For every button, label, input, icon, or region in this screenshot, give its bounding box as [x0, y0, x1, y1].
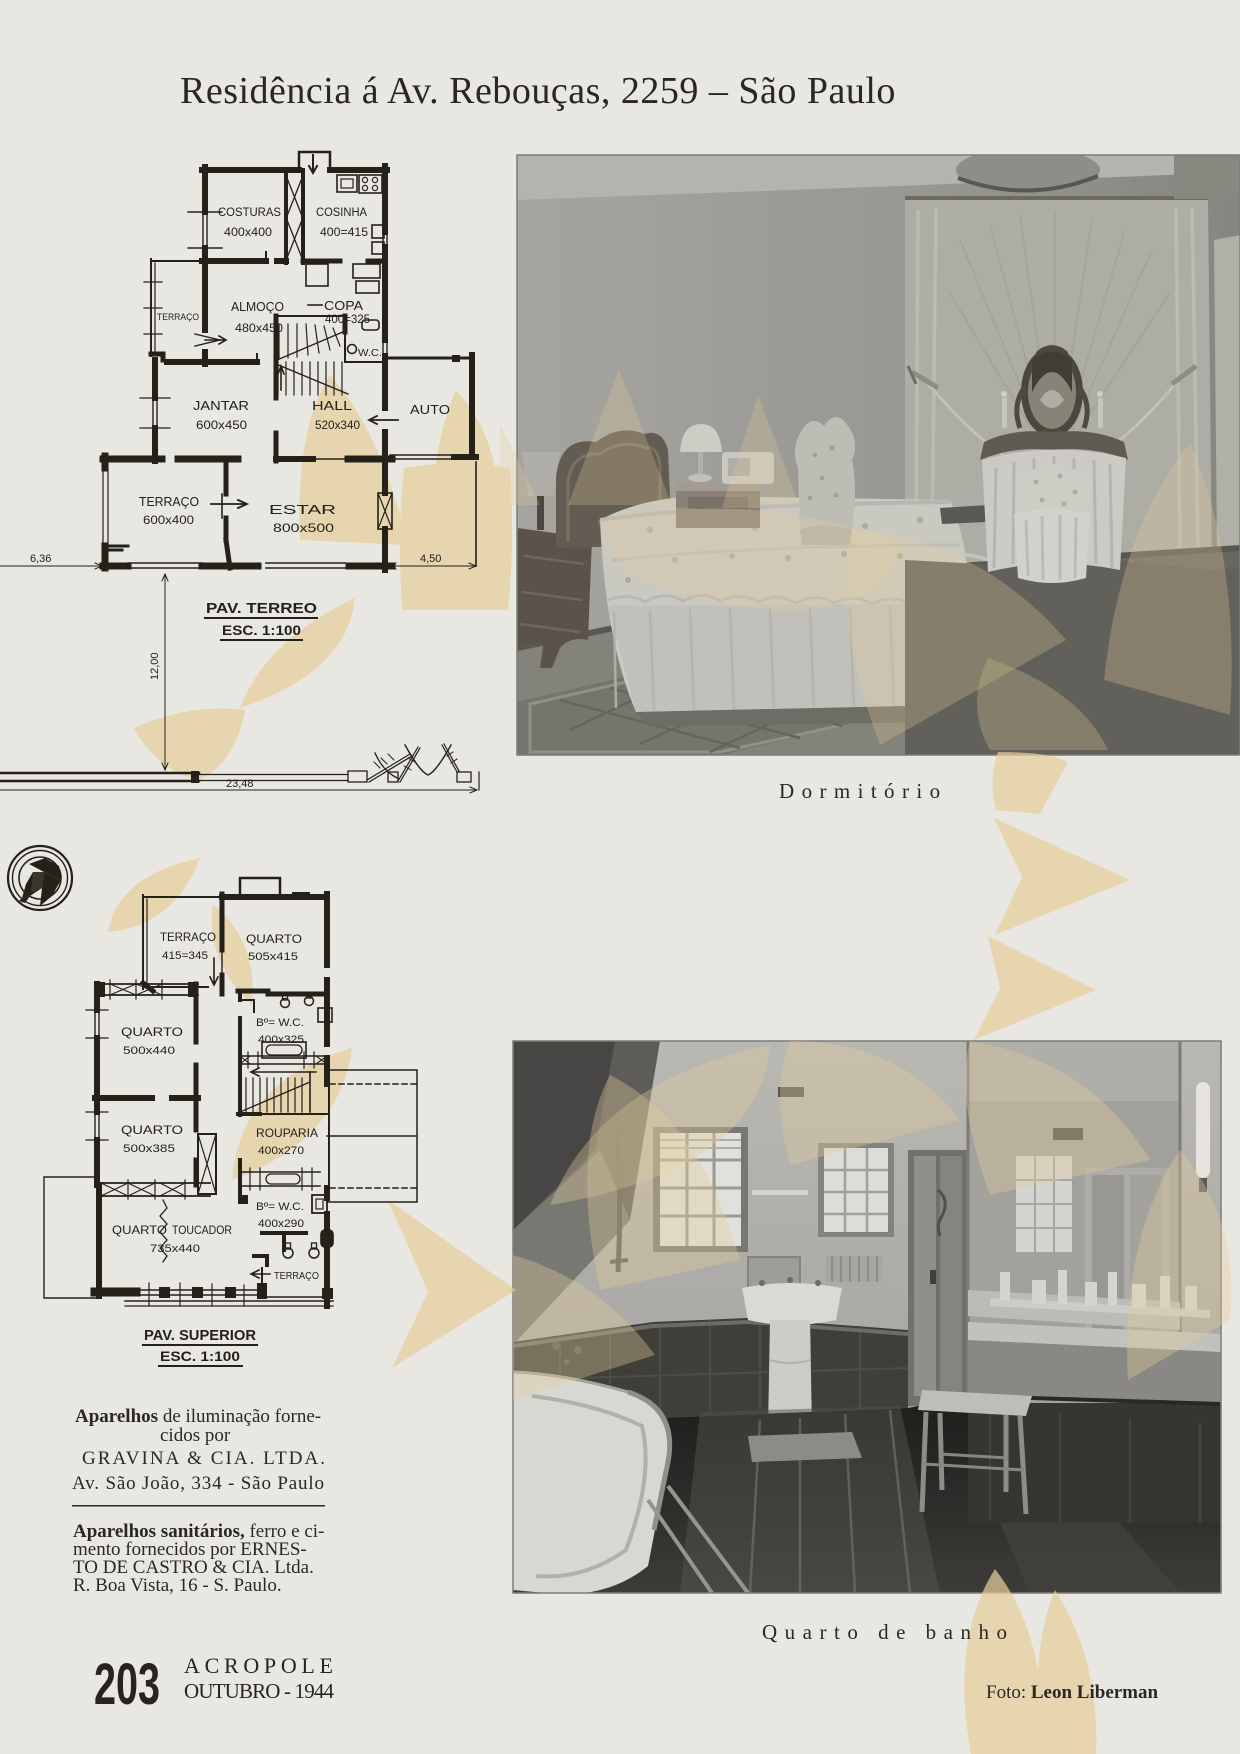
- svg-text:COSTURAS: COSTURAS: [218, 207, 281, 219]
- svg-text:ESTAR: ESTAR: [269, 503, 336, 517]
- svg-text:QUARTO: QUARTO: [246, 934, 302, 946]
- svg-text:Dormitório: Dormitório: [779, 779, 948, 803]
- svg-text:505x415: 505x415: [248, 951, 298, 963]
- svg-text:QUARTO: QUARTO: [112, 1225, 167, 1237]
- svg-text:ESC. 1:100: ESC. 1:100: [160, 1348, 240, 1364]
- svg-text:cidos por: cidos por: [160, 1425, 231, 1446]
- svg-text:400x400: 400x400: [224, 227, 272, 239]
- svg-text:Bº= W.C.: Bº= W.C.: [256, 1017, 304, 1029]
- svg-text:203: 203: [94, 1652, 160, 1717]
- svg-text:W.C.: W.C.: [358, 347, 382, 359]
- svg-text:TERRAÇO: TERRAÇO: [157, 312, 199, 323]
- svg-text:PAV. TERREO: PAV. TERREO: [206, 600, 317, 617]
- svg-text:TOUCADOR: TOUCADOR: [172, 1225, 232, 1237]
- svg-text:400x290: 400x290: [258, 1218, 304, 1230]
- svg-text:800x500: 800x500: [273, 523, 334, 535]
- svg-text:GRAVINA & CIA. LTDA.: GRAVINA & CIA. LTDA.: [82, 1448, 325, 1469]
- svg-text:600x400: 600x400: [143, 515, 194, 527]
- svg-text:COPA: COPA: [324, 299, 364, 313]
- svg-text:520x340: 520x340: [315, 420, 360, 432]
- svg-text:400=415: 400=415: [320, 227, 368, 239]
- svg-text:415=345: 415=345: [162, 950, 208, 962]
- svg-text:600x450: 600x450: [196, 420, 247, 432]
- svg-text:4,50: 4,50: [420, 553, 441, 565]
- svg-text:Bº= W.C.: Bº= W.C.: [256, 1201, 304, 1213]
- svg-text:COSINHA: COSINHA: [316, 207, 367, 219]
- svg-text:R. Boa Vista, 16 - S. Paulo.: R. Boa Vista, 16 - S. Paulo.: [73, 1575, 282, 1596]
- svg-text:Av. São João, 334 - São Paulo: Av. São João, 334 - São Paulo: [72, 1473, 324, 1494]
- svg-text:400x270: 400x270: [258, 1145, 304, 1157]
- svg-text:400x325: 400x325: [258, 1034, 304, 1046]
- svg-text:Quarto de banho: Quarto de banho: [762, 1620, 1014, 1644]
- svg-text:ESC. 1:100: ESC. 1:100: [222, 622, 301, 638]
- svg-text:ROUPARIA: ROUPARIA: [256, 1128, 318, 1140]
- svg-text:12,00: 12,00: [149, 652, 161, 680]
- svg-text:Residência á Av. Rebouças, 225: Residência á Av. Rebouças, 2259 – São Pa…: [180, 70, 896, 112]
- svg-text:500x440: 500x440: [123, 1045, 175, 1057]
- svg-text:TERRAÇO: TERRAÇO: [139, 495, 199, 509]
- svg-text:Foto: Leon Liberman: Foto: Leon Liberman: [986, 1682, 1159, 1703]
- svg-text:735x440: 735x440: [150, 1243, 200, 1255]
- svg-text:Aparelhos de iluminação forne-: Aparelhos de iluminação forne-: [75, 1406, 321, 1427]
- svg-text:TERRAÇO: TERRAÇO: [274, 1271, 319, 1282]
- svg-text:6,36: 6,36: [30, 553, 51, 565]
- svg-text:23,48: 23,48: [226, 778, 254, 790]
- svg-text:QUARTO: QUARTO: [121, 1125, 183, 1137]
- svg-text:TERRAÇO: TERRAÇO: [160, 932, 216, 944]
- svg-text:JANTAR: JANTAR: [193, 399, 249, 413]
- svg-text:ALMOÇO: ALMOÇO: [231, 300, 284, 314]
- svg-text:HALL: HALL: [312, 399, 352, 413]
- svg-text:500x385: 500x385: [123, 1143, 175, 1155]
- svg-text:OUTUBRO - 1944: OUTUBRO - 1944: [184, 1679, 335, 1703]
- svg-text:QUARTO: QUARTO: [121, 1027, 183, 1039]
- svg-text:ACROPOLE: ACROPOLE: [184, 1653, 333, 1678]
- svg-text:AUTO: AUTO: [410, 403, 450, 417]
- svg-text:PAV. SUPERIOR: PAV. SUPERIOR: [144, 1327, 256, 1344]
